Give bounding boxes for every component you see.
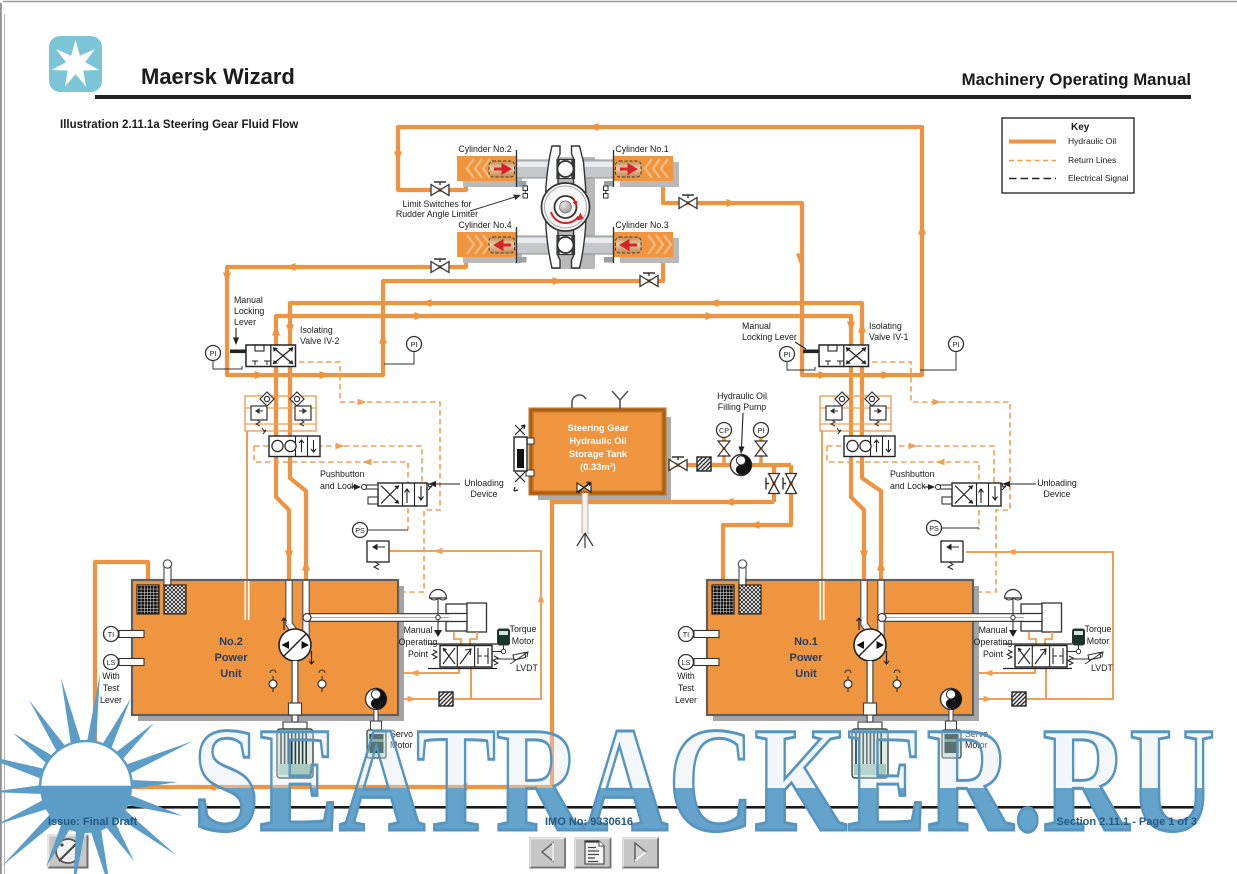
svg-text:Valve IV-1: Valve IV-1 <box>869 332 909 342</box>
svg-text:Rudder Angle Limiter: Rudder Angle Limiter <box>396 209 478 219</box>
svg-text:Electrical Signal: Electrical Signal <box>1068 173 1129 183</box>
svg-text:PS: PS <box>355 526 365 535</box>
svg-text:PI: PI <box>210 349 217 358</box>
svg-text:CP: CP <box>719 426 729 435</box>
svg-text:Unloading: Unloading <box>1037 478 1077 488</box>
svg-text:PI: PI <box>953 340 960 349</box>
svg-text:Key: Key <box>1071 122 1090 133</box>
svg-text:Unloading: Unloading <box>464 478 504 488</box>
svg-text:and Lock: and Lock <box>320 481 356 491</box>
svg-text:Manual: Manual <box>404 625 433 635</box>
svg-text:Test: Test <box>678 683 695 693</box>
svg-text:and Lock: and Lock <box>890 481 926 491</box>
svg-text:Device: Device <box>1044 489 1071 499</box>
svg-text:Unit: Unit <box>795 668 817 680</box>
svg-text:Cylinder No.3: Cylinder No.3 <box>615 220 668 230</box>
svg-text:Manual: Manual <box>979 625 1008 635</box>
svg-text:Torque: Torque <box>1085 624 1112 634</box>
svg-text:Storage Tank: Storage Tank <box>569 449 628 459</box>
svg-text:Issue: Final Draft: Issue: Final Draft <box>48 816 138 828</box>
svg-text:TI: TI <box>108 630 114 639</box>
svg-text:Point: Point <box>983 649 1004 659</box>
svg-text:Machinery Operating Manual: Machinery Operating Manual <box>962 70 1191 89</box>
svg-text:With: With <box>102 671 120 681</box>
svg-text:Filling Pump: Filling Pump <box>718 402 767 412</box>
svg-text:PI: PI <box>758 426 765 435</box>
svg-text:Motor: Motor <box>1087 636 1110 646</box>
svg-text:Isolating: Isolating <box>300 325 333 335</box>
svg-text:Power: Power <box>214 652 248 664</box>
svg-text:LS: LS <box>107 658 116 667</box>
svg-text:Hydraulic Oil: Hydraulic Oil <box>569 436 626 446</box>
svg-text:TI: TI <box>683 630 689 639</box>
svg-text:Device: Device <box>471 489 498 499</box>
svg-text:Hydraulic Oil: Hydraulic Oil <box>1068 136 1116 146</box>
svg-text:Motor: Motor <box>512 636 535 646</box>
svg-text:Cylinder No.1: Cylinder No.1 <box>615 144 668 154</box>
svg-text:PS: PS <box>929 524 939 533</box>
svg-text:Lever: Lever <box>234 317 256 327</box>
svg-text:Valve IV-2: Valve IV-2 <box>300 336 340 346</box>
svg-text:Power: Power <box>789 652 823 664</box>
svg-text:Illustration 2.11.1a Steering: Illustration 2.11.1a Steering Gear Fluid… <box>60 119 298 131</box>
svg-text:Cylinder No.4: Cylinder No.4 <box>458 220 511 230</box>
svg-text:Steering Gear: Steering Gear <box>568 423 629 433</box>
svg-text:No.1: No.1 <box>794 636 818 648</box>
svg-text:Return Lines: Return Lines <box>1068 155 1116 165</box>
svg-text:Lever: Lever <box>100 695 122 705</box>
svg-text:No.2: No.2 <box>219 636 243 648</box>
svg-text:LVDT: LVDT <box>1091 663 1113 673</box>
svg-text:Manual: Manual <box>234 295 263 305</box>
svg-text:Hydraulic Oil: Hydraulic Oil <box>717 391 767 401</box>
svg-text:Limit Switches for: Limit Switches for <box>403 199 472 209</box>
svg-text:Pushbutton: Pushbutton <box>890 469 935 479</box>
svg-text:Operating: Operating <box>974 637 1013 647</box>
svg-text:Operating: Operating <box>399 637 438 647</box>
svg-text:LS: LS <box>682 658 691 667</box>
svg-text:Test: Test <box>103 683 120 693</box>
svg-text:Locking Lever: Locking Lever <box>742 332 797 342</box>
svg-text:LVDT: LVDT <box>516 663 538 673</box>
svg-text:Pushbutton: Pushbutton <box>320 469 365 479</box>
svg-text:Point: Point <box>408 649 429 659</box>
svg-text:Manual: Manual <box>742 321 771 331</box>
svg-text:Torque: Torque <box>510 624 537 634</box>
svg-text:IMO No: 9330616: IMO No: 9330616 <box>545 816 633 828</box>
svg-text:Isolating: Isolating <box>869 321 902 331</box>
svg-text:Section 2.11.1 - Page 1 of 3: Section 2.11.1 - Page 1 of 3 <box>1056 816 1197 828</box>
svg-text:Maersk Wizard: Maersk Wizard <box>141 64 295 89</box>
svg-text:PI: PI <box>784 350 791 359</box>
svg-text:Unit: Unit <box>220 668 242 680</box>
svg-text:Locking: Locking <box>234 306 264 316</box>
svg-text:(0.33m³): (0.33m³) <box>580 462 616 472</box>
svg-text:PI: PI <box>411 340 418 349</box>
svg-text:Cylinder No.2: Cylinder No.2 <box>458 144 511 154</box>
svg-text:With: With <box>677 671 695 681</box>
